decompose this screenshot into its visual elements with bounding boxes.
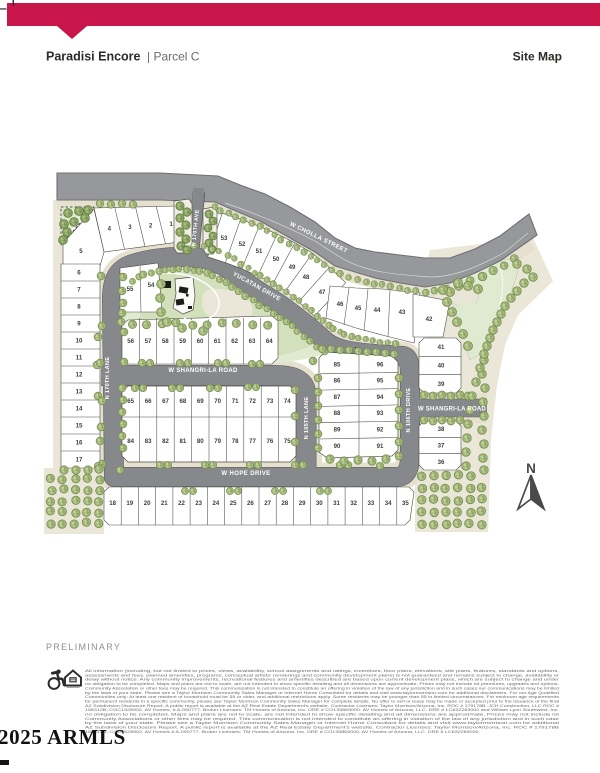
svg-text:15: 15 (76, 423, 83, 430)
svg-text:53: 53 (221, 235, 228, 242)
svg-text:54: 54 (148, 282, 155, 289)
svg-text:59: 59 (179, 338, 186, 345)
svg-text:63: 63 (249, 338, 256, 345)
svg-text:23: 23 (195, 500, 202, 507)
svg-text:94: 94 (377, 394, 384, 401)
svg-text:28: 28 (281, 500, 288, 507)
svg-text:76: 76 (267, 438, 274, 445)
svg-text:93: 93 (377, 410, 384, 417)
svg-text:24: 24 (213, 500, 220, 507)
svg-text:71: 71 (232, 398, 239, 405)
svg-text:19: 19 (126, 500, 133, 507)
svg-text:49: 49 (289, 264, 296, 271)
svg-text:33: 33 (368, 500, 375, 507)
svg-text:75: 75 (284, 438, 291, 445)
svg-text:21: 21 (161, 500, 168, 507)
svg-text:61: 61 (214, 338, 221, 345)
svg-text:27: 27 (264, 500, 271, 507)
svg-text:30: 30 (316, 500, 323, 507)
svg-text:67: 67 (162, 398, 169, 405)
svg-text:2025 ARMLS: 2025 ARMLS (0, 725, 126, 749)
svg-text:13: 13 (76, 389, 83, 396)
svg-text:N: N (526, 461, 536, 476)
svg-text:66: 66 (145, 398, 152, 405)
svg-text:95: 95 (377, 378, 384, 385)
svg-text:65: 65 (127, 398, 134, 405)
svg-text:no obligation to be completed.: no obligation to be completed. Maps and … (85, 713, 559, 717)
svg-text:37: 37 (438, 443, 445, 450)
svg-text:79: 79 (214, 438, 221, 445)
svg-text:55: 55 (127, 286, 134, 293)
svg-text:AZ Subdivision Disclosure Repo: AZ Subdivision Disclosure Report. A publ… (85, 726, 560, 730)
svg-text:22: 22 (178, 500, 185, 507)
svg-text:17: 17 (76, 457, 83, 464)
svg-text:36: 36 (438, 459, 445, 466)
svg-text:158312B; CGC1528902. AV Homes: 158312B; CGC1528902. AV Homes # A-090777… (85, 730, 480, 734)
svg-text:86: 86 (334, 378, 341, 385)
svg-text:12: 12 (76, 372, 83, 379)
svg-text:60: 60 (197, 338, 204, 345)
svg-text:57: 57 (145, 338, 152, 345)
svg-text:Community Association or other: Community Association or other fees may … (85, 686, 559, 690)
svg-text:W HOPE DRIVE: W HOPE DRIVE (221, 471, 270, 477)
svg-text:N 106TH DRIVE: N 106TH DRIVE (406, 388, 412, 433)
svg-text:91: 91 (377, 443, 384, 450)
svg-text:42: 42 (426, 316, 433, 323)
svg-text:26: 26 (247, 500, 254, 507)
svg-text:48: 48 (303, 274, 310, 281)
svg-text:62: 62 (231, 338, 238, 345)
svg-text:68: 68 (180, 398, 187, 405)
svg-text:82: 82 (162, 438, 169, 445)
svg-text:158312B; CGC1528902. AV Homes,: 158312B; CGC1528902. AV Homes, # A-09077… (85, 708, 559, 712)
svg-text:20: 20 (144, 500, 151, 507)
svg-text:31: 31 (333, 500, 340, 507)
svg-text:73: 73 (267, 398, 274, 405)
svg-text:69: 69 (197, 398, 204, 405)
svg-text:51: 51 (256, 248, 263, 255)
svg-text:56: 56 (127, 338, 134, 345)
svg-text:46: 46 (337, 301, 344, 308)
svg-text:74: 74 (284, 398, 291, 405)
svg-text:W SHANGRI-LA ROAD: W SHANGRI-LA ROAD (418, 406, 486, 412)
svg-text:83: 83 (145, 438, 152, 445)
svg-text:14: 14 (76, 406, 83, 413)
svg-text:90: 90 (334, 443, 341, 450)
svg-text:3: 3 (128, 224, 132, 231)
svg-text:39: 39 (438, 381, 445, 388)
svg-text:87: 87 (334, 394, 341, 401)
svg-text:18: 18 (109, 500, 116, 507)
svg-text:44: 44 (374, 307, 381, 314)
svg-text:10: 10 (76, 338, 83, 345)
svg-text:45: 45 (355, 305, 362, 312)
svg-text:40: 40 (438, 363, 445, 370)
svg-text:Paradisi Encore: Paradisi Encore (46, 50, 141, 64)
svg-text:38: 38 (438, 426, 445, 433)
svg-text:72: 72 (249, 398, 256, 405)
svg-text:85: 85 (334, 362, 341, 369)
svg-text:50: 50 (273, 256, 280, 263)
svg-text:58: 58 (162, 338, 169, 345)
svg-text:Site Map: Site Map (513, 50, 562, 64)
svg-text:25: 25 (230, 500, 237, 507)
svg-text:47: 47 (319, 289, 326, 296)
svg-text:80: 80 (197, 438, 204, 445)
svg-text:| Parcel C: | Parcel C (147, 50, 200, 64)
svg-text:81: 81 (180, 438, 187, 445)
svg-text:64: 64 (266, 338, 273, 345)
svg-text:52: 52 (239, 241, 246, 248)
svg-text:29: 29 (299, 500, 306, 507)
svg-text:16: 16 (76, 440, 83, 447)
svg-text:All information (including, bu: All information (including, but not limi… (85, 669, 559, 673)
svg-text:1: 1 (170, 221, 174, 228)
svg-text:96: 96 (377, 362, 384, 369)
svg-text:41: 41 (438, 344, 445, 351)
svg-text:88: 88 (334, 410, 341, 417)
svg-text:70: 70 (214, 398, 221, 405)
svg-text:11: 11 (76, 355, 83, 362)
svg-text:W SHANGRI-LA ROAD: W SHANGRI-LA ROAD (168, 368, 238, 374)
svg-text:43: 43 (399, 309, 406, 316)
svg-text:PRELIMINARY: PRELIMINARY (46, 642, 121, 652)
svg-text:no obligation to be completed.: no obligation to be completed. Maps and … (85, 682, 559, 686)
svg-text:34: 34 (385, 500, 392, 507)
svg-text:35: 35 (402, 500, 409, 507)
svg-text:89: 89 (334, 427, 341, 434)
svg-text:84: 84 (127, 438, 134, 445)
svg-text:32: 32 (350, 500, 357, 507)
svg-text:78: 78 (232, 438, 239, 445)
svg-text:Communities only: At least one: Communities only: At least one resident … (85, 695, 559, 699)
svg-text:77: 77 (249, 438, 256, 445)
svg-text:92: 92 (377, 427, 384, 434)
svg-text:N 105TH LANE: N 105TH LANE (304, 397, 310, 440)
svg-text:N 170TH LANE: N 170TH LANE (105, 357, 111, 400)
